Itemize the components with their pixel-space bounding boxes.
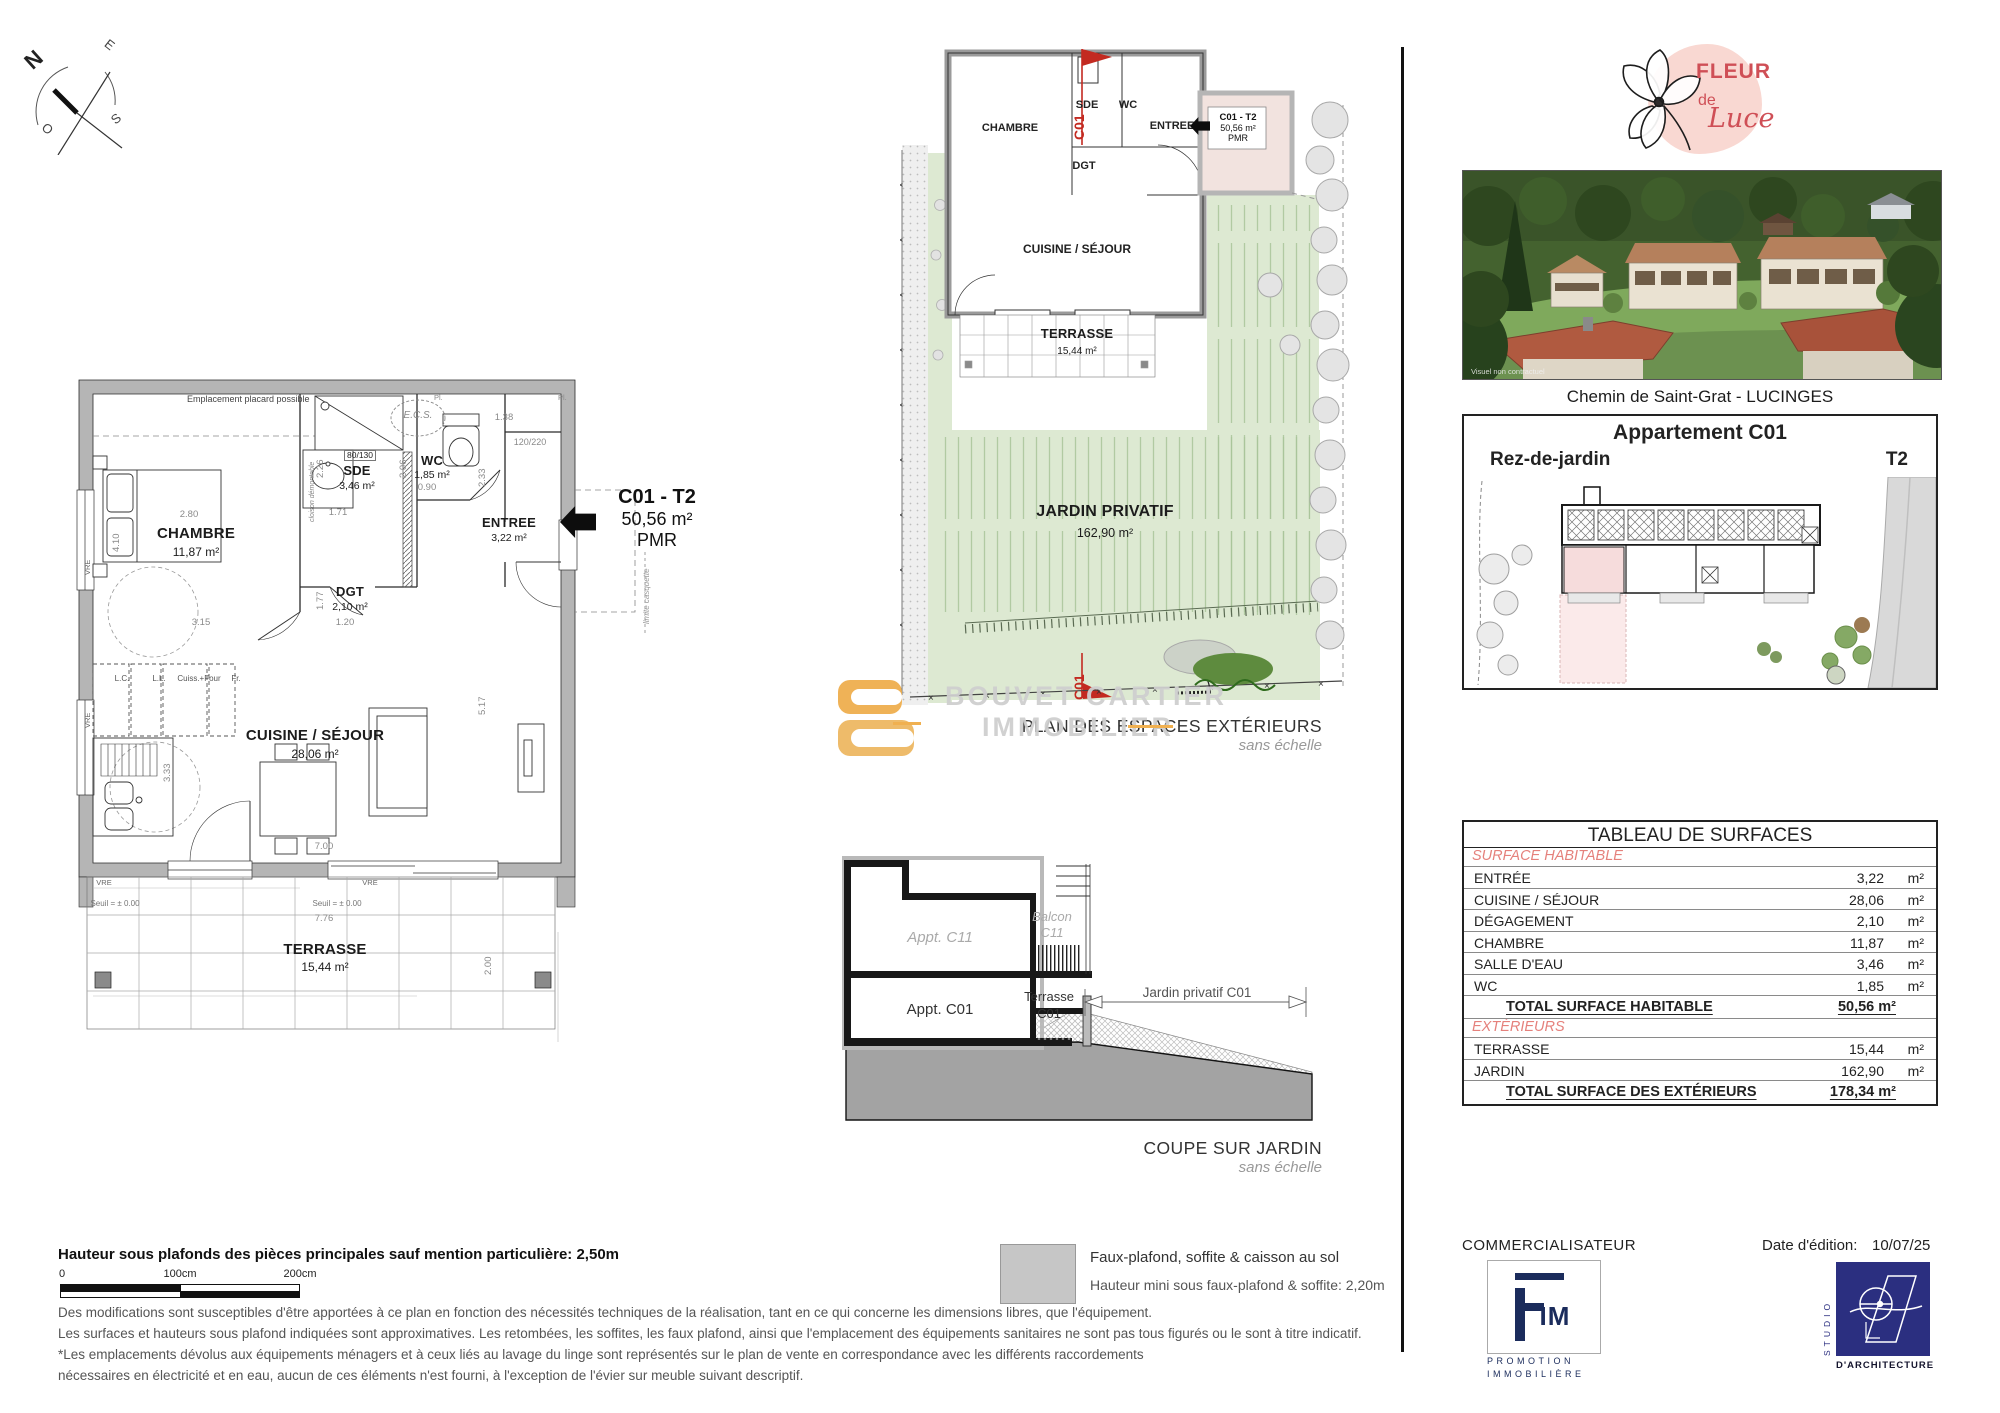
vre-bottom-1: VRE xyxy=(96,879,111,887)
ext-section-c01-top: C01 xyxy=(1072,114,1087,140)
height-note: Hauteur sous plafonds des pièces princip… xyxy=(58,1247,619,1264)
row-unit: m² xyxy=(1908,870,1924,886)
room-sde-area: 3,46 m² xyxy=(339,481,375,493)
table-section-habitable: SURFACE HABITABLE xyxy=(1464,848,1936,867)
ext-unit-code: C01 - T2 xyxy=(1210,112,1266,123)
room-terrasse: TERRASSE xyxy=(283,942,366,959)
disclaimer-1: Des modifications sont susceptibles d'êt… xyxy=(58,1306,1152,1321)
edition-date-value: 10/07/25 xyxy=(1872,1238,1930,1255)
table-row: WC1,85m² xyxy=(1464,975,1936,997)
coupe-balcon-2: C11 xyxy=(1041,926,1064,940)
svg-text:×: × xyxy=(900,455,903,465)
unit-floor: Rez-de-jardin xyxy=(1490,450,1610,471)
main-unit-area: 50,56 m² xyxy=(596,509,718,530)
ext-unit-label: C01 - T2 50,56 m² PMR xyxy=(1210,112,1266,143)
dim-333: 3.33 xyxy=(163,764,173,783)
surface-table-title: TABLEAU DE SURFACES xyxy=(1464,822,1936,848)
main-unit-code: C01 - T2 xyxy=(596,486,718,509)
disclaimer-4: nécessaires en électricité et en eau, au… xyxy=(58,1369,803,1384)
scale-100: 100cm xyxy=(163,1268,196,1280)
room-dgt-area: 2,10 m² xyxy=(332,602,368,614)
unit-type: T2 xyxy=(1886,450,1908,471)
disclaimer-3: *Les emplacements dévolus aux équipement… xyxy=(58,1348,1144,1363)
total-label: TOTAL SURFACE DES EXTÉRIEURS xyxy=(1506,1084,1757,1100)
jardin-privatif: JARDIN PRIVATIF xyxy=(1036,503,1174,521)
room-wc: WC xyxy=(421,454,443,468)
disclaimer-2: Les surfaces et hauteurs sous plafond in… xyxy=(58,1327,1362,1342)
table-row: TERRASSE15,44m² xyxy=(1464,1038,1936,1060)
fim-letters: IM xyxy=(1540,1301,1571,1332)
site-plan-drawing xyxy=(1464,477,1936,688)
row-unit: m² xyxy=(1908,935,1924,951)
row-unit: m² xyxy=(1908,978,1924,994)
ext-unit-pmr: PMR xyxy=(1210,133,1266,143)
row-label: DÉGAGEMENT xyxy=(1474,913,1574,929)
coupe-appt-c01: Appt. C01 xyxy=(907,1002,974,1019)
coupe-balcon-1: Balcon xyxy=(1032,910,1072,924)
scale-bar xyxy=(60,1284,300,1298)
surface-table: TABLEAU DE SURFACES SURFACE HABITABLE EN… xyxy=(1462,820,1938,1106)
pl-label-2: Pl. xyxy=(558,394,567,402)
room-chambre-area: 11,87 m² xyxy=(173,546,219,559)
dim-226: 2.26 xyxy=(316,460,326,479)
row-value: 3,22 xyxy=(1857,870,1884,886)
row-value: 15,44 xyxy=(1849,1041,1884,1057)
legend-line2: Hauteur mini sous faux-plafond & soffite… xyxy=(1090,1278,1385,1293)
fim-sub2: IMMOBILIÈRE xyxy=(1487,1369,1603,1379)
fim-bar xyxy=(1515,1273,1564,1280)
coupe-terrasse-1: Terrasse xyxy=(1024,990,1074,1004)
row-label: CHAMBRE xyxy=(1474,935,1544,951)
table-row: CUISINE / SÉJOUR28,06m² xyxy=(1464,889,1936,911)
dim-776: 7.76 xyxy=(315,914,334,924)
kitchen-icons xyxy=(93,664,235,836)
plan-sheet: N E S O xyxy=(0,0,2000,1413)
watermark-dash-left xyxy=(893,722,921,725)
room-cuisine: CUISINE / SÉJOUR xyxy=(246,728,384,745)
studio-vertical-label: STUDIO xyxy=(1822,1262,1832,1356)
site-unit-c01 xyxy=(1564,547,1624,593)
total-label: TOTAL SURFACE HABITABLE xyxy=(1506,999,1713,1015)
svg-text:×: × xyxy=(900,180,903,190)
fim-sub1: PROMOTION xyxy=(1487,1356,1603,1366)
table-row: ENTRÉE3,22m² xyxy=(1464,867,1936,889)
svg-text:×: × xyxy=(928,693,934,704)
dim-700: 7.00 xyxy=(315,842,334,852)
project-photo: Visuel non contractuel xyxy=(1462,170,1942,380)
toilet-icon xyxy=(443,414,479,466)
coupe-appt-c11: Appt. C11 xyxy=(907,930,973,947)
ext-terrasse-area: 15,44 m² xyxy=(1057,346,1096,357)
svg-text:×: × xyxy=(900,565,903,575)
commercialisateur-label: COMMERCIALISATEUR xyxy=(1462,1238,1636,1255)
unit-title: Appartement C01 xyxy=(1613,421,1787,444)
studio-logo-art xyxy=(1836,1262,1930,1356)
main-unit-label: C01 - T2 50,56 m² PMR xyxy=(596,486,718,551)
row-label: CUISINE / SÉJOUR xyxy=(1474,892,1599,908)
row-value: 11,87 xyxy=(1850,935,1884,951)
ext-room-entree: ENTREE xyxy=(1150,120,1195,132)
seuil-1: Seuil = ± 0.00 xyxy=(90,900,139,909)
row-label: ENTRÉE xyxy=(1474,870,1531,886)
svg-text:×: × xyxy=(1318,679,1324,690)
dim-200: 2.00 xyxy=(484,957,494,976)
table-section-exterieurs: EXTÉRIEURS xyxy=(1464,1019,1936,1038)
coupe-caption-title: COUPE SUR JARDIN xyxy=(900,1138,1322,1159)
svg-text:×: × xyxy=(900,620,903,630)
appliance-fr: Fr. xyxy=(231,675,240,684)
table-total-habitable: TOTAL SURFACE HABITABLE50,56 m² xyxy=(1464,996,1936,1019)
photo-note: Visuel non contractuel xyxy=(1471,367,1545,376)
vre-left-1: VRE xyxy=(84,560,92,575)
svg-text:×: × xyxy=(900,235,903,245)
room-entree: ENTREE xyxy=(482,516,536,530)
appliance-ll: L.L. xyxy=(152,675,165,684)
jardin-privatif-area: 162,90 m² xyxy=(1077,527,1133,541)
column-divider xyxy=(1401,47,1404,1352)
total-value: 178,34 m² xyxy=(1830,1084,1896,1100)
legend-swatch xyxy=(1000,1244,1076,1304)
row-unit: m² xyxy=(1908,1063,1924,1079)
coupe-jardin-dim: Jardin privatif C01 xyxy=(1143,986,1252,1001)
appliance-lc: L.C. xyxy=(115,675,130,684)
scale-200: 200cm xyxy=(283,1268,316,1280)
row-label: WC xyxy=(1474,978,1497,994)
vre-bottom-2: VRE xyxy=(362,879,377,887)
dim-171: 1.71 xyxy=(329,508,348,518)
room-dgt: DGT xyxy=(336,585,364,599)
main-unit-pmr: PMR xyxy=(596,530,718,551)
appliance-cuiss: Cuiss.+Four xyxy=(177,675,220,684)
dim-517: 5.17 xyxy=(478,697,488,716)
table-row: JARDIN162,90m² xyxy=(1464,1060,1936,1082)
ext-room-cuisine: CUISINE / SÉJOUR xyxy=(1023,243,1131,256)
legend-line1: Faux-plafond, soffite & caisson au sol xyxy=(1090,1250,1339,1267)
door-sde-label: 80/130 xyxy=(344,450,376,461)
sideboard-icon xyxy=(518,724,544,792)
scale-0: 0 xyxy=(59,1268,65,1280)
row-value: 2,10 xyxy=(1857,913,1884,929)
edition-date-label: Date d'édition: xyxy=(1762,1238,1857,1255)
dim-280: 2.80 xyxy=(180,510,199,520)
note-placard: Emplacement placard possible xyxy=(187,395,310,405)
ecs-label: E.C.S. xyxy=(404,410,433,421)
total-value: 50,56 m² xyxy=(1838,999,1896,1015)
ext-unit-area: 50,56 m² xyxy=(1210,123,1266,133)
brand-luce: Luce xyxy=(1708,104,1774,134)
dim-206: 2.06 xyxy=(399,460,409,479)
watermark-dash-right xyxy=(1128,725,1173,728)
dim-120: 1.20 xyxy=(336,618,355,628)
row-label: JARDIN xyxy=(1474,1063,1525,1079)
table-row: CHAMBRE11,87m² xyxy=(1464,932,1936,954)
table-row: DÉGAGEMENT2,10m² xyxy=(1464,910,1936,932)
room-terrasse-area: 15,44 m² xyxy=(301,961,348,974)
vre-left-2: VRE xyxy=(84,713,92,728)
watermark-line1: BOUVET CARTIER xyxy=(945,681,1227,712)
table-total-exterieurs: TOTAL SURFACE DES EXTÉRIEURS178,34 m² xyxy=(1464,1081,1936,1104)
fim-logo: IM xyxy=(1487,1260,1601,1354)
row-unit: m² xyxy=(1908,892,1924,908)
row-value: 28,06 xyxy=(1849,892,1884,908)
seuil-2: Seuil = ± 0.00 xyxy=(312,900,361,909)
brand-fleur: FLEUR xyxy=(1696,60,1771,83)
dim-120220: 120/220 xyxy=(514,438,547,448)
room-entree-area: 3,22 m² xyxy=(491,533,527,545)
room-chambre: CHAMBRE xyxy=(157,526,235,543)
studio-caption: D'ARCHITECTURE xyxy=(1836,1361,1930,1371)
row-value: 3,46 xyxy=(1857,956,1884,972)
coupe-terrasse-2: C01 xyxy=(1037,1007,1061,1021)
row-unit: m² xyxy=(1908,913,1924,929)
pl-label-1: Pl. xyxy=(434,394,443,402)
row-unit: m² xyxy=(1908,1041,1924,1057)
coupe-caption: COUPE SUR JARDIN sans échelle xyxy=(900,1138,1322,1176)
watermark-logo xyxy=(838,680,922,758)
row-label: SALLE D'EAU xyxy=(1474,956,1563,972)
svg-text:×: × xyxy=(900,510,903,520)
row-label: TERRASSE xyxy=(1474,1041,1549,1057)
limite-label: limite casquette xyxy=(643,568,652,624)
dim-177: 1.77 xyxy=(316,592,326,611)
room-sde: SDE xyxy=(343,464,370,478)
dim-315: 3.15 xyxy=(192,618,211,628)
dim-090: 0.90 xyxy=(418,483,437,493)
svg-text:×: × xyxy=(900,290,903,300)
shower-icon xyxy=(315,396,403,450)
svg-text:×: × xyxy=(900,345,903,355)
sofa-icon xyxy=(369,708,427,816)
svg-text:×: × xyxy=(900,400,903,410)
row-unit: m² xyxy=(1908,956,1924,972)
ext-room-sde: SDE xyxy=(1076,99,1099,111)
dim-410: 4.10 xyxy=(112,534,122,553)
dim-138: 1.38 xyxy=(495,413,514,423)
row-value: 1,85 xyxy=(1857,978,1884,994)
ext-room-wc: WC xyxy=(1119,99,1137,111)
room-cuisine-area: 28,06 m² xyxy=(291,748,338,761)
project-address: Chemin de Saint-Grat - LUCINGES xyxy=(1567,388,1833,407)
coupe-caption-sub: sans échelle xyxy=(900,1159,1322,1176)
row-value: 162,90 xyxy=(1841,1063,1884,1079)
ext-room-dgt: DGT xyxy=(1072,160,1095,172)
fim-stem xyxy=(1515,1288,1525,1341)
dim-233: 2.33 xyxy=(478,469,488,488)
ext-terrasse: TERRASSE xyxy=(1041,327,1113,341)
room-wc-area: 1,85 m² xyxy=(414,470,450,482)
table-row: SALLE D'EAU3,46m² xyxy=(1464,953,1936,975)
ext-room-chambre: CHAMBRE xyxy=(982,122,1038,134)
